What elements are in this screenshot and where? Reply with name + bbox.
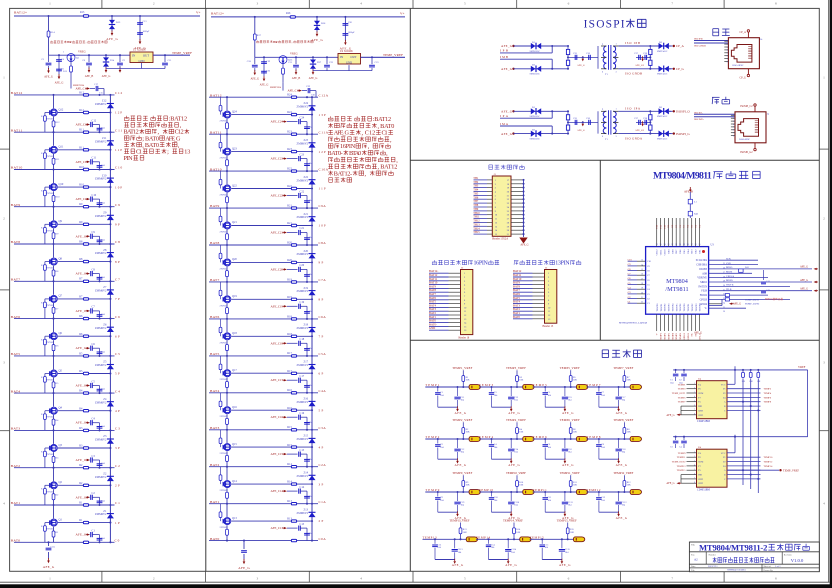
svg-text:WDTB: WDTB [726,284,734,287]
svg-text:ZMM6V2: ZMM6V2 [297,364,309,367]
svg-text:10K: 10K [570,532,574,534]
svg-text:2: 2 [823,217,825,221]
svg-text:3P: 3P [319,482,324,486]
svg-text:AFE_G: AFE_G [102,75,111,78]
svg-text:34: 34 [723,302,725,304]
svg-text:BAT5: BAT5 [210,352,219,356]
svg-text:SMDA05C: SMDA05C [657,137,668,140]
svg-text:10K: 10K [519,432,523,434]
svg-text:SCLK/IPA: SCLK/IPA [696,259,707,262]
svg-text:ZMM6V2: ZMM6V2 [297,216,309,219]
svg-text:Q20: Q20 [232,258,237,261]
svg-text:ZMM6V2: ZMM6V2 [297,105,309,108]
svg-text:V-: V- [656,333,659,336]
svg-text:CD4051BM: CD4051BM [697,489,711,492]
svg-text:MT9804/MT9811_LQFP48: MT9804/MT9811_LQFP48 [619,322,648,325]
svg-text:MT9804: MT9804 [666,278,688,285]
svg-text:BAT12: BAT12 [11,91,23,95]
svg-text:/MT9811: /MT9811 [665,286,688,293]
svg-text:C21: C21 [300,227,305,230]
svg-text:4: 4 [694,465,695,467]
svg-text:C10A: C10A [319,167,329,171]
svg-text:CB6: CB6 [679,249,682,254]
svg-text:Q6: Q6 [59,332,63,335]
svg-text:5P: 5P [319,408,324,412]
svg-text:TEMP13_VREF: TEMP13_VREF [450,519,470,523]
svg-text:AFE_G: AFE_G [455,463,467,467]
svg-text:R15: R15 [287,444,292,447]
svg-text:D26: D26 [321,22,326,25]
svg-text:TH8: TH8 [473,204,479,207]
svg-text:ZMM6V2: ZMM6V2 [297,512,309,515]
svg-text:C0A: C0A [319,537,327,541]
svg-text:CB8: CB8 [671,249,674,254]
svg-text:2: 2 [3,217,5,221]
svg-text:MRIO: MRIO [700,281,707,284]
svg-text:36: 36 [656,244,658,246]
svg-text:IMB: IMB [500,55,508,59]
svg-text:TEMP1: TEMP1 [660,303,663,312]
svg-text:19: 19 [641,288,643,290]
svg-text:SMDA05C: SMDA05C [530,115,541,118]
svg-text:VREG: VREG [78,51,86,54]
svg-text:C23: C23 [300,153,305,156]
svg-text:CB10: CB10 [664,249,667,256]
svg-text:10K: 10K [573,380,577,382]
svg-text:TH4: TH4 [473,189,479,192]
svg-text:R16: R16 [287,407,292,410]
svg-text:BAT1: BAT1 [210,500,219,504]
svg-text:C12: C12 [92,119,97,122]
svg-text:AFE_B: AFE_B [292,77,301,80]
svg-text:TEMP_VREF: TEMP_VREF [783,469,799,472]
svg-text:CB5: CB5 [683,249,686,254]
svg-text:AFE_B: AFE_B [85,75,94,78]
svg-text:7: 7 [727,58,728,60]
svg-text:R20: R20 [287,259,292,262]
svg-text:AFE_G: AFE_G [577,129,585,132]
svg-text:Q3: Q3 [59,444,63,447]
svg-text:BAT1: BAT1 [11,501,20,505]
svg-text:TEMP6: TEMP6 [679,303,682,312]
svg-text:Drawn By:: Drawn By: [764,570,774,572]
svg-text:R19: R19 [287,278,292,281]
svg-text:C22: C22 [300,190,305,193]
svg-text:V1.0.0: V1.0.0 [791,558,804,563]
svg-text:SMDA05C: SMDA05C [530,50,541,53]
svg-text:CB12: CB12 [656,249,659,256]
svg-text:AFE_C16: AFE_C16 [271,415,284,419]
svg-text:8: 8 [733,135,734,137]
svg-text:TEMP5: TEMP5 [675,303,678,312]
svg-text:Q15: Q15 [232,443,237,446]
svg-text:C4A: C4A [319,389,327,393]
svg-text:4: 4 [727,50,728,52]
svg-text:BAT11: BAT11 [11,128,23,132]
svg-text:VCC: VCC [721,384,726,386]
svg-text:3: 3 [694,460,695,462]
svg-text:3: 3 [257,577,259,581]
svg-text:CP_A: CP_A [676,44,684,48]
svg-text:AFE_C23: AFE_C23 [271,157,284,161]
svg-text:BAT6: BAT6 [11,315,20,319]
svg-text:R11: R11 [79,129,84,132]
svg-text:TH7: TH7 [473,200,479,203]
svg-text:ISOSPI: ISOSPI [584,19,625,31]
svg-text:BAT7: BAT7 [210,278,219,282]
svg-text:ZMM6V2: ZMM6V2 [297,327,309,330]
svg-text:7: 7 [671,577,673,581]
svg-text:Q14: Q14 [232,480,237,483]
svg-text:26: 26 [695,244,697,246]
svg-text:BAT5: BAT5 [11,352,20,356]
svg-text:TEMP0: TEMP0 [683,303,686,312]
svg-text:BAT4: BAT4 [11,389,20,393]
svg-text:TEMP3: TEMP3 [668,303,671,312]
svg-text:VREG4: VREG4 [726,275,735,278]
svg-text:Title: Title [691,544,695,546]
svg-text:Q19: Q19 [232,295,237,298]
svg-text:MT9804/MT9811-2: MT9804/MT9811-2 [699,542,767,552]
svg-text:TH5: TH5 [473,193,479,196]
svg-text:TH11: TH11 [473,216,480,219]
svg-text:13P: 13P [319,113,326,117]
svg-text:Number: Number [709,554,716,556]
svg-text:3P: 3P [115,446,120,450]
svg-text:R17: R17 [287,352,292,355]
svg-text:TEMP1: TEMP1 [660,332,663,340]
svg-text:21: 21 [641,297,643,299]
svg-text:AFE_G: AFE_G [43,565,55,569]
svg-text:C15: C15 [300,449,305,452]
svg-text:TEMP14_VREF: TEMP14_VREF [503,519,523,523]
svg-text:ISOSPI_O: ISOSPI_O [676,110,690,114]
svg-text:D13: D13 [116,21,121,24]
svg-text:File:: File: [691,570,695,572]
svg-text:VREF: VREF [798,365,806,369]
svg-text:AFE_G: AFE_G [800,288,808,291]
svg-text:AFE_C24: AFE_C24 [271,120,284,124]
svg-text:C18: C18 [300,338,305,341]
svg-text:TEMP3: TEMP3 [667,332,670,340]
svg-text:ISO IPA: ISO IPA [694,111,703,114]
svg-text:TEMP4: TEMP4 [672,303,675,312]
svg-text:AFE_G: AFE_G [508,463,520,467]
svg-text:TEMP11: TEMP11 [677,456,686,459]
svg-text:TEMP_VREF: TEMP_VREF [383,53,403,57]
svg-text:ISOSPI_G2: ISOSPI_G2 [740,151,753,154]
svg-text:Q4: Q4 [59,407,63,410]
svg-text:C0: C0 [115,539,120,543]
svg-text:C17: C17 [300,375,305,378]
svg-text:C6A: C6A [319,315,327,319]
svg-text:R21: R21 [287,222,292,225]
svg-text:13PIN: 13PIN [555,261,570,267]
svg-text:8: 8 [727,61,728,63]
svg-text:ZMM6V2: ZMM6V2 [297,142,309,145]
svg-text:TEMP3: TEMP3 [695,303,698,312]
svg-text:TEMP6: TEMP6 [679,332,682,340]
svg-text:R16: R16 [287,389,292,392]
svg-text:C1A: C1A [319,500,327,504]
svg-text:10K: 10K [466,380,470,382]
svg-text:12P: 12P [115,111,122,115]
svg-text:C14: C14 [300,486,305,489]
svg-text:TEMP6_VREF: TEMP6_VREF [560,418,580,422]
svg-text:Q24: Q24 [232,110,237,113]
svg-text:32: 32 [671,244,673,246]
svg-text:6P: 6P [319,372,324,376]
svg-text:1: 1 [694,383,695,385]
svg-text:ISOSPI_C2: ISOSPI_C2 [740,105,753,108]
svg-text:9P: 9P [319,261,324,265]
svg-text:AFE_G: AFE_G [559,563,571,567]
svg-text:AFE_G: AFE_G [106,37,118,41]
svg-text:GPIO1: GPIO1 [683,332,686,340]
svg-text:34: 34 [664,244,666,246]
svg-text:ZMM6V2: ZMM6V2 [95,439,107,442]
svg-text:Q8: Q8 [59,257,63,260]
svg-text:R24: R24 [287,94,292,97]
svg-text:R12: R12 [79,91,84,94]
svg-text:TEMP5: TEMP5 [675,332,678,340]
svg-text:VCC: VCC [721,453,726,455]
svg-text:22: 22 [641,302,643,304]
svg-text:AFE_G: AFE_G [455,411,467,415]
svg-text:AFE_G: AFE_G [800,266,808,269]
svg-text:U1 XC6206: U1 XC6206 [133,49,146,52]
svg-text:5P: 5P [115,372,120,376]
svg-text:ZMM6V2: ZMM6V2 [95,513,107,516]
svg-text:BAT2: BAT2 [11,464,20,468]
svg-text:2: 2 [153,577,155,581]
svg-text:C1: C1 [136,149,142,156]
svg-text:AFE_C13: AFE_C13 [271,526,284,530]
svg-text:BAT11: BAT11 [210,130,222,134]
svg-text:C4: C4 [115,389,120,393]
svg-text:V-: V- [705,307,708,310]
svg-text:Q12: Q12 [59,108,64,111]
svg-text:BAT8: BAT8 [210,241,219,245]
svg-text:1: 1 [823,76,825,80]
svg-text:AFE_G: AFE_G [508,411,520,415]
svg-text:CP_G: CP_G [676,67,684,71]
svg-text:C12A: C12A [319,93,329,97]
svg-text:C10: C10 [663,224,666,229]
svg-text:C11: C11 [92,157,97,160]
svg-text:36: 36 [723,311,725,313]
svg-text:CP_A: CP_A [740,31,746,34]
svg-text:10K: 10K [466,485,470,487]
svg-text:C3A: C3A [319,426,327,430]
svg-text:TEMP_VREF: TEMP_VREF [172,51,192,55]
svg-text:2: 2 [733,118,734,120]
svg-text:BAT6: BAT6 [210,315,219,319]
svg-text:10K: 10K [573,485,577,487]
svg-text:6P: 6P [115,334,120,338]
svg-text:AFE_G: AFE_G [694,332,702,335]
svg-text:4P: 4P [319,445,324,449]
svg-text:4: 4 [733,124,734,126]
svg-text:CSB/IMA: CSB/IMA [696,264,707,267]
svg-text:1: 1 [3,76,5,80]
svg-text:2: 2 [153,2,155,6]
svg-text:TH6: TH6 [473,196,479,199]
svg-text:BAT2: BAT2 [210,463,219,467]
svg-text:1000pF: 1000pF [143,31,150,33]
svg-text:ISO GNDB: ISO GNDB [694,44,706,47]
svg-text:TEMP4: TEMP4 [764,392,772,395]
svg-text:C1: C1 [115,501,120,505]
svg-text:Q5: Q5 [59,369,63,372]
svg-text:ZMM6V2: ZMM6V2 [95,252,107,255]
svg-text:MT9804-2.SchDoc: MT9804-2.SchDoc [727,569,746,572]
svg-text:4: 4 [823,502,825,506]
svg-text:C7: C7 [115,278,120,282]
svg-text:Q10: Q10 [59,183,64,186]
svg-text:ZMM6V2: ZMM6V2 [95,140,107,143]
svg-text:4: 4 [360,577,362,581]
svg-text:C11: C11 [115,128,122,132]
svg-text:ZMM6V2: ZMM6V2 [297,253,309,256]
svg-text:Size: Size [691,554,695,556]
svg-text:4P: 4P [115,409,120,413]
svg-text:C3: C3 [115,427,120,431]
svg-text:R24: R24 [287,111,292,114]
svg-text:R13: R13 [287,500,292,503]
svg-text:PIN: PIN [124,155,134,162]
svg-text:ZMM6V2: ZMM6V2 [95,215,107,218]
svg-text:V+: V+ [400,12,404,16]
svg-text:C1: C1 [382,130,388,137]
svg-text:Header 13: Header 13 [543,325,554,328]
svg-text:AFE_G: AFE_G [250,78,259,81]
svg-text:OUT: OUT [143,54,149,58]
svg-text:13: 13 [184,149,190,156]
svg-text:TH12: TH12 [473,220,480,223]
svg-text:12P: 12P [319,150,326,154]
svg-text:C19: C19 [300,301,305,304]
svg-text:AFE_C14: AFE_C14 [271,489,284,493]
svg-text:8P: 8P [319,298,324,302]
svg-text:5: 5 [727,53,728,55]
svg-text:C13: C13 [300,523,305,526]
svg-text:RJ45-8P8C: RJ45-8P8C [739,138,750,141]
svg-text:GND: GND [698,415,703,417]
svg-text:3: 3 [3,361,5,365]
svg-text:2P: 2P [115,484,120,488]
svg-text:ZMM6V2: ZMM6V2 [95,290,107,293]
svg-text:C115: C115 [565,549,571,551]
svg-text:CB3: CB3 [691,249,694,254]
svg-text:AFE_G2: AFE_G2 [635,64,645,67]
svg-text:TEMP7_VREF: TEMP7_VREF [613,366,633,370]
svg-text:COM: COM [698,393,703,395]
svg-text:C7A: C7A [319,278,327,282]
svg-text:10K: 10K [757,381,761,383]
svg-text:BAT8: BAT8 [11,240,20,244]
svg-text:TH13: TH13 [473,223,480,226]
svg-text:BAT12: BAT12 [124,129,139,136]
svg-text:8: 8 [694,482,695,484]
svg-text:10K: 10K [519,380,523,382]
svg-text:ZMM6V2: ZMM6V2 [297,401,309,404]
svg-text:ISO IPB: ISO IPB [625,41,640,45]
svg-text:MISO: MISO [726,266,732,269]
svg-text:IMA: IMA [500,122,509,126]
svg-text:R27: R27 [257,34,262,37]
svg-text:C114: C114 [511,549,517,551]
svg-text:8: 8 [694,414,695,416]
svg-text:6: 6 [727,56,728,58]
svg-text:TEMP2: TEMP2 [664,332,667,340]
svg-text:TH10: TH10 [473,212,480,215]
svg-text:7: 7 [694,478,695,480]
svg-text:AFE_G: AFE_G [309,77,318,80]
svg-text:AFE_G: AFE_G [616,411,628,415]
svg-text:1: 1 [616,109,617,111]
svg-text:10K: 10K [463,532,467,534]
svg-text:ZMM6V2: ZMM6V2 [95,327,107,330]
svg-text:AFE_G: AFE_G [238,566,250,570]
svg-text:TEMP5: TEMP5 [678,396,686,399]
svg-text:FILB: FILB [726,288,732,291]
svg-text:15: 15 [641,269,643,271]
svg-text:4: 4 [3,502,5,506]
svg-text:TEMP6: TEMP6 [764,396,772,399]
svg-text:8: 8 [775,2,777,6]
svg-text:ZMM6V2: ZMM6V2 [95,401,107,404]
svg-text:GPIO3: GPIO3 [700,298,708,301]
svg-text:28: 28 [687,244,689,246]
svg-text:TEMP11_VREF: TEMP11_VREF [560,471,580,475]
svg-text:Q7: Q7 [59,295,63,298]
svg-text:VREG: VREG [290,53,298,56]
svg-text:6: 6 [568,577,570,581]
svg-text:4: 4 [694,396,695,398]
svg-text:AFE_G: AFE_G [501,132,513,136]
svg-text:2: 2 [727,44,728,46]
svg-text:BTA0: BTA0 [349,150,361,157]
svg-text:TEMP15: TEMP15 [677,469,687,472]
svg-text:ISO GNDA: ISO GNDA [625,136,643,140]
svg-text:SWTEN: SWTEN [698,285,707,288]
svg-text:CB1: CB1 [699,249,702,254]
svg-text:Q1: Q1 [59,518,63,521]
svg-text:10K: 10K [516,532,520,534]
svg-text:10K: 10K [466,432,470,434]
svg-text:R13: R13 [80,11,85,14]
svg-text:AFE_G: AFE_G [616,516,628,520]
svg-text:C2A: C2A [319,463,327,467]
svg-text:TEMP10: TEMP10 [764,456,774,459]
svg-text:R23: R23 [287,131,292,134]
svg-text:C10: C10 [92,194,97,197]
svg-text:Date:: Date: [691,566,696,568]
svg-text:C8A: C8A [319,241,327,245]
svg-text:8P: 8P [115,260,120,264]
svg-text:6: 6 [568,2,570,6]
svg-text:GND: GND [698,479,703,481]
svg-text:9P: 9P [115,223,120,227]
svg-text:INH: INH [698,406,702,408]
svg-text:TEMP2_VREF: TEMP2_VREF [452,418,472,422]
svg-text:TH1: TH1 [473,177,479,180]
svg-text:BAT0-: BAT0- [328,150,343,157]
svg-text:6: 6 [694,473,695,475]
svg-text:TEMP5_VREF: TEMP5_VREF [560,366,580,370]
svg-text:AFE_G: AFE_G [666,414,674,417]
